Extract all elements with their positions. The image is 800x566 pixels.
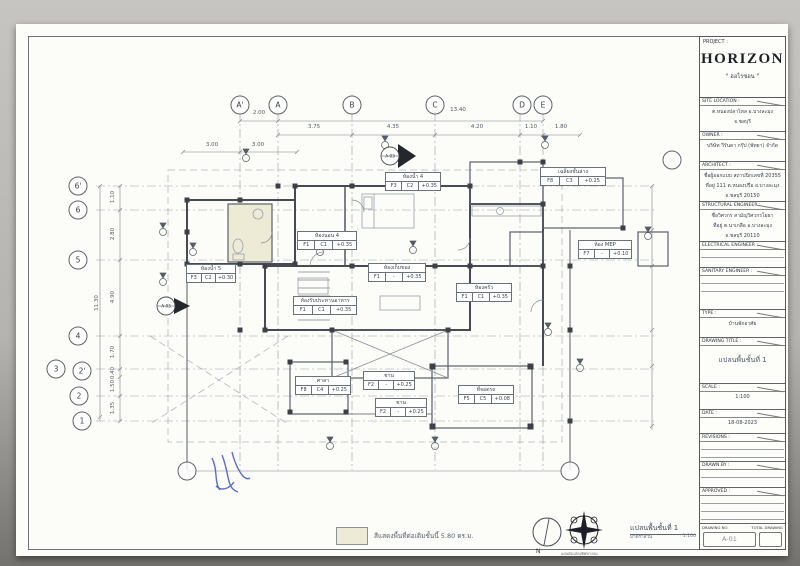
dimension-label: 1.70 (110, 346, 116, 358)
dimension-label: 4.35 (387, 124, 399, 130)
grid-bubble: 6' (69, 177, 88, 196)
plan-scale-value: 1:100 (683, 534, 696, 541)
title-block-sections: SITE LOCATION :ต.หนองปลาไหล อ.บางละมุงจ.… (700, 98, 785, 524)
total-drawing-label: TOTAL DRAWING (751, 525, 783, 530)
section-marker-label: A-03 (157, 304, 175, 309)
grid-bubble: 2' (73, 362, 92, 381)
grid-bubble: 3 (47, 360, 66, 379)
photographed-drawing-sheet: A'ABCDE6'65432'212.0013.403.754.354.201.… (0, 0, 800, 566)
section-marker-label: A-03 (381, 154, 399, 159)
legend-color-swatch (336, 527, 368, 545)
project-label: PROJECT : (700, 37, 785, 45)
grid-bubble: B (343, 96, 362, 115)
grid-bubble: E (534, 96, 553, 115)
room-label-table: ห้องนอน 4F1C1+0.35 (297, 231, 357, 250)
room-label-table: ห้องรับประทานอาหารF1C1+0.35 (293, 296, 357, 315)
dimension-label: 11.30 (94, 295, 100, 311)
titleblock-section: DRAWN BY : (700, 462, 785, 488)
room-label-table: ห้องน้ำ 5F3C2+0.30 (186, 264, 236, 283)
titleblock-section: SITE LOCATION :ต.หนองปลาไหล อ.บางละมุงจ.… (700, 98, 785, 132)
title-block: PROJECT : HORIZON " ฮอไรซอน " SITE LOCAT… (699, 36, 786, 550)
room-label-table: ศาลาF8C4+0.25 (295, 376, 351, 395)
drawing-no-value: A-01 (703, 532, 756, 547)
grid-bubble: 5 (69, 251, 88, 270)
drawing-no-label: DRAWING NO. (702, 525, 729, 530)
grid-bubble: 6 (69, 201, 88, 220)
total-drawing-value (759, 532, 782, 547)
plan-annotations: A'ABCDE6'65432'212.0013.403.754.354.201.… (0, 0, 800, 566)
project-name-thai: " ฮอไรซอน " (700, 71, 785, 81)
dimension-label: 2.00 (253, 110, 265, 116)
grid-bubble: C (426, 96, 445, 115)
grid-bubble (178, 462, 197, 481)
titleblock-section: DATE :18-08-2023 (700, 410, 785, 434)
room-label-table: ที่จอดรถF5C5+0.08 (458, 385, 514, 404)
project-box: PROJECT : HORIZON " ฮอไรซอน " (700, 37, 785, 98)
room-label-table: ห้องครัวF1C1+0.35 (456, 283, 512, 302)
room-label-table: ห้องเก็บของF1-+0.35 (368, 263, 426, 282)
room-label-table: ห้อง MEPF7-+0.10 (578, 240, 632, 259)
grid-bubble: 2 (70, 387, 89, 406)
dimension-label: 2.80 (110, 228, 116, 240)
titleblock-section: SCALE :1:100 (700, 384, 785, 410)
dimension-label: 1.35 (110, 402, 116, 414)
dimension-label: 1.50 (110, 380, 116, 392)
titleblock-section: REVISIONS : (700, 434, 785, 462)
titleblock-section: OWNER :บริษัท วีรันดา กรุ๊ป (พัทยา) จำกั… (700, 132, 785, 162)
plan-scale-label: มาตราส่วน (630, 534, 652, 541)
grid-bubble (561, 462, 580, 481)
dimension-label: 0.40 (110, 367, 116, 379)
titleblock-section: ELECTRICAL ENGINEER : (700, 242, 785, 268)
dimension-label: 3.00 (206, 142, 218, 148)
grid-bubble: 4 (69, 327, 88, 346)
grid-bubble: D (513, 96, 532, 115)
dimension-label: 1.10 (110, 191, 116, 203)
titleblock-section: APPROVED : (700, 488, 785, 524)
titleblock-section: SANITARY ENGINEER : (700, 268, 785, 310)
grid-bubble (663, 151, 682, 170)
titleblock-section: DRAWING TITLE :แปลนพื้นชั้นที่ 1 (700, 338, 785, 384)
north-label: N (536, 548, 541, 555)
dimension-label: 1.10 (525, 124, 537, 130)
room-label-table: เฉลียงชั้นล่างF8C3+0.25 (540, 167, 606, 186)
titleblock-section: TYPE :บ้านพักอาศัย (700, 310, 785, 338)
project-name: HORIZON (700, 51, 785, 68)
dimension-label: 3.75 (308, 124, 320, 130)
dimension-label: 4.90 (110, 291, 116, 303)
grid-bubble: 1 (73, 412, 92, 431)
compass-caption: แผนผังแสดงทิศทางลม (561, 551, 598, 557)
titleblock-section: STRUCTURAL ENGINEER :ชื่อวิศวกร สามัญวิศ… (700, 202, 785, 242)
dimension-label: 13.40 (450, 107, 466, 113)
dimension-label: 1.80 (555, 124, 567, 130)
drawing-number-strip: DRAWING NO. TOTAL DRAWING A-01 (700, 524, 785, 549)
legend-note: สีแสดงพื้นที่ต่อเติมชั้นนี้ 5.80 ตร.ม. (374, 531, 473, 541)
room-label-table: ชานF2-+0.25 (375, 398, 427, 417)
grid-bubble: A (269, 96, 288, 115)
grid-bubble: A' (231, 96, 250, 115)
titleblock-section: ARCHITECT :ชื่อผู้ออกแบบ สถาปนิกเลขที่ 2… (700, 162, 785, 202)
room-label-table: ห้องน้ำ 4F3C2+0.35 (385, 172, 441, 191)
dimension-label: 4.20 (471, 124, 483, 130)
plan-scale-row: มาตราส่วน 1:100 (630, 534, 696, 541)
room-label-table: ชานF2-+0.25 (363, 371, 415, 390)
dimension-label: 3.00 (252, 142, 264, 148)
